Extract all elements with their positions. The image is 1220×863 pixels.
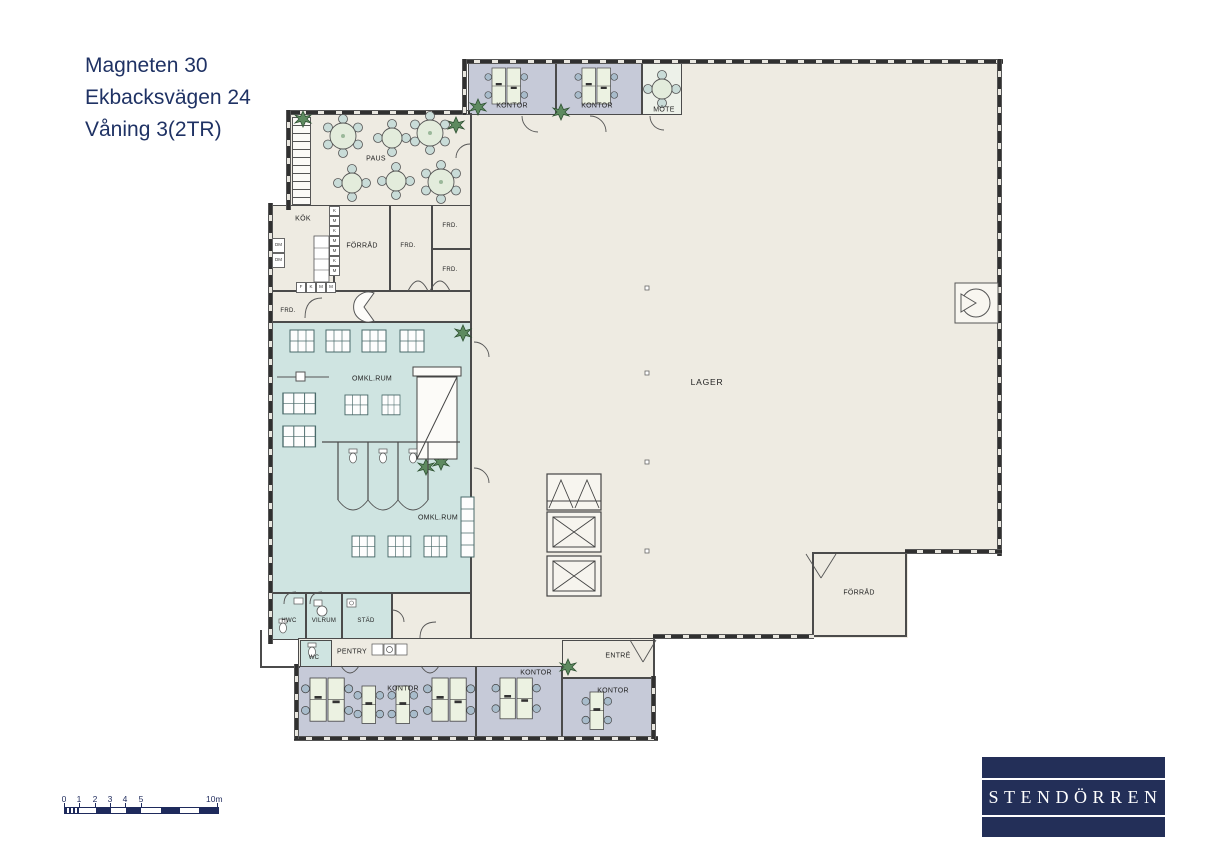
label-kontor-top-right: KONTOR: [581, 103, 613, 110]
scale-seg: [199, 808, 218, 813]
scale-seg: [96, 808, 111, 813]
label-lager: LAGER: [691, 377, 724, 387]
unit-cell: M: [329, 266, 340, 276]
scale-end-label: 10m: [206, 794, 223, 804]
wall-west: [268, 203, 273, 644]
wall-east: [997, 59, 1002, 556]
scale-seg: [161, 808, 180, 813]
label-frd-mid: FRD.: [400, 243, 415, 249]
scale-tickmark: [125, 803, 126, 807]
label-entre: ENTRÉ: [605, 653, 630, 660]
label-omkl-lower: OMKL.RUM: [418, 515, 458, 522]
label-hwc: HWC: [281, 618, 296, 624]
room-frd-left: [272, 291, 472, 322]
label-pentry: PENTRY: [337, 649, 367, 656]
title-line-3: Våning 3(2TR): [85, 114, 251, 146]
unit-cell: F: [296, 282, 306, 293]
unit-cell: K: [329, 256, 340, 266]
wall-southeast: [905, 549, 1002, 554]
room-stad: [342, 593, 392, 640]
scale-seg: [180, 808, 199, 813]
label-kontor-top-left: KONTOR: [496, 103, 528, 110]
wall-stub-v: [260, 630, 262, 668]
label-kok: KÖK: [295, 216, 311, 223]
scale-seg: [65, 808, 80, 813]
wall-connector: [462, 59, 467, 115]
label-frd-top-right: FRD.: [442, 223, 457, 229]
room-omkl: [272, 322, 472, 593]
unit-cell: DM: [272, 253, 285, 268]
label-stad: STÄD: [357, 618, 374, 624]
scale-tickmark: [95, 803, 96, 807]
unit-cell: K: [306, 282, 316, 293]
label-kontor-bottom-mid: KONTOR: [520, 670, 552, 677]
wall-paus-top: [288, 110, 470, 115]
wall-office-left: [294, 664, 299, 739]
scale-seg: [80, 808, 95, 813]
scale-tickmark: [64, 803, 65, 807]
wall-lager-bottom: [653, 634, 814, 639]
building-cutout: [908, 554, 1008, 640]
kitchen-units-column: K M K M M K M: [329, 206, 340, 276]
logo-stendorren: STENDÖRREN: [982, 757, 1165, 837]
scale-tickmark: [110, 803, 111, 807]
title-line-2: Ekbacksvägen 24: [85, 82, 251, 114]
unit-cell: M: [326, 282, 336, 293]
wall-entre-right: [653, 638, 655, 678]
kitchen-units-left: DM DM: [272, 238, 285, 268]
title-line-1: Magneten 30: [85, 50, 251, 82]
scale-bar-strip: [64, 807, 219, 814]
label-kontor-bottom-right: KONTOR: [597, 688, 629, 695]
room-wc: [300, 640, 332, 668]
label-vilrum: VILRUM: [312, 618, 336, 624]
label-frd-left: FRD.: [280, 308, 295, 314]
wall-office-bottom: [294, 736, 658, 741]
unit-cell: K: [329, 226, 340, 236]
label-forrad-lower: FÖRRÅD: [843, 590, 874, 597]
label-omkl-upper: OMKL.RUM: [352, 376, 392, 383]
label-kontor-bottom-left: KONTOR: [387, 686, 419, 693]
label-paus: PAUS: [366, 156, 386, 163]
unit-cell: M: [329, 236, 340, 246]
logo-text: STENDÖRREN: [982, 778, 1165, 817]
scale-tickmark: [217, 803, 218, 807]
corridor-omkl: [392, 593, 472, 640]
label-forrad-upper: FÖRRÅD: [346, 243, 377, 250]
unit-cell: DM: [272, 238, 285, 253]
plan-title: Magneten 30 Ekbacksvägen 24 Våning 3(2TR…: [85, 50, 251, 146]
label-wc: WC: [309, 655, 320, 661]
room-vilrum: [306, 593, 342, 640]
room-lager-top: [680, 62, 1002, 115]
label-frd-bottom-right: FRD.: [442, 267, 457, 273]
wall-top: [462, 59, 1003, 64]
unit-cell: M: [329, 216, 340, 226]
room-kontor-bottom-left: [298, 666, 476, 738]
scale-bar: 0 1 2 3 4 5 10m: [60, 794, 240, 826]
room-kontor-bottom-mid: [476, 666, 562, 738]
unit-cell: M: [329, 246, 340, 256]
unit-cell: K: [329, 206, 340, 216]
scale-tickmark: [141, 803, 142, 807]
scale-tickmark: [79, 803, 80, 807]
wall-paus-left: [286, 110, 291, 210]
scale-seg: [111, 808, 126, 813]
wall-lager-left: [470, 113, 472, 638]
room-hwc: [272, 593, 306, 640]
stairs: [292, 117, 311, 205]
scale-seg: [141, 808, 160, 813]
kitchen-units-row: F K M M: [296, 282, 336, 293]
scale-seg: [126, 808, 141, 813]
wall-office-right: [651, 676, 656, 739]
label-mote: MÖTE: [653, 107, 674, 114]
unit-cell: M: [316, 282, 326, 293]
